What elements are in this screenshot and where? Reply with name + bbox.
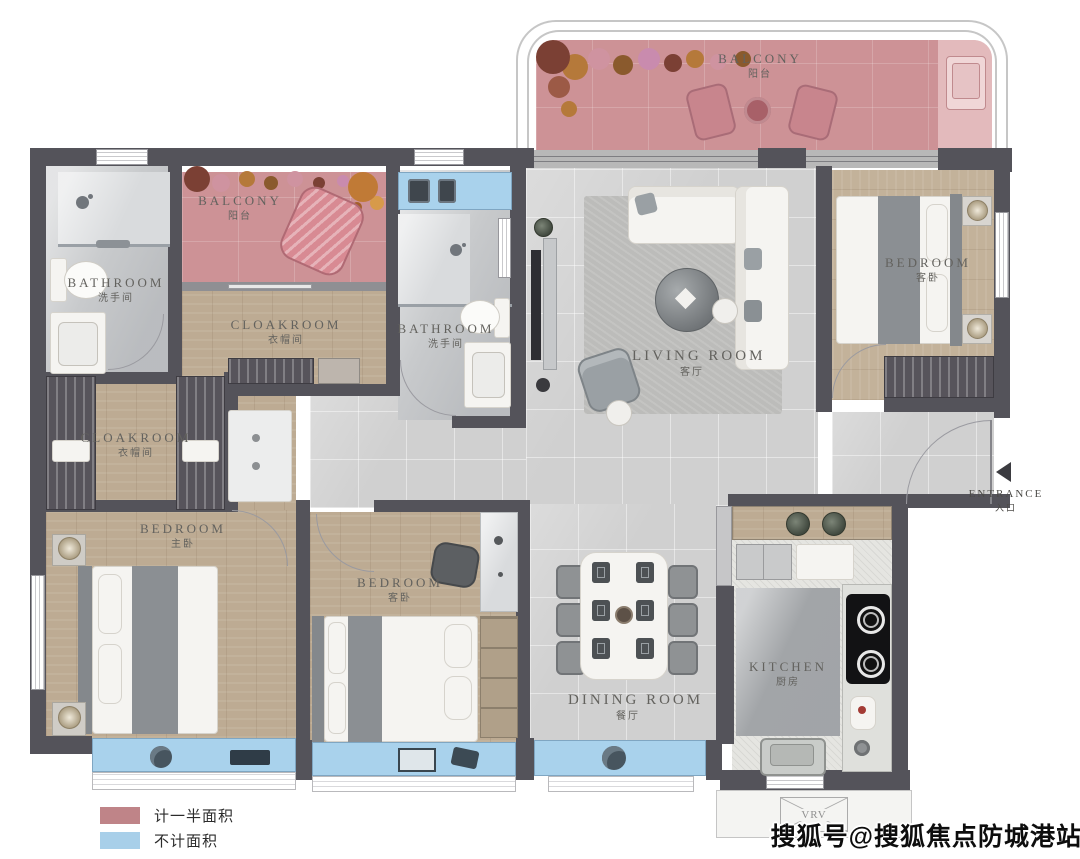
room-label-en: CLOAKROOM (76, 431, 196, 446)
decor-plate (150, 746, 172, 768)
bed-pillow (444, 624, 472, 668)
room-label-zh: 入口 (954, 503, 1058, 513)
room-label-cloakroom-top: CLOAKROOM 衣帽间 (226, 318, 346, 346)
wall (884, 398, 1010, 412)
wall (510, 166, 526, 428)
wall (516, 500, 530, 740)
shower-area (58, 172, 170, 244)
console-table (732, 506, 892, 540)
window-sill (548, 776, 694, 792)
room-label-en: BEDROOM (868, 256, 988, 271)
room-label-zh: 阳台 (180, 211, 300, 223)
room-label-en: CLOAKROOM (226, 318, 346, 333)
window (414, 149, 464, 165)
room-label-en: DINING ROOM (568, 692, 688, 709)
place-setting (636, 638, 654, 659)
room-label-en: BEDROOM (123, 522, 243, 537)
appliance-dot (858, 706, 866, 714)
bed-headboard (312, 616, 324, 742)
decor-frame (398, 748, 436, 772)
kitchen-sink-basin (770, 744, 814, 766)
room-label-zh: 客卧 (868, 273, 988, 285)
room-label-entrance: ENTRANCE 入口 (954, 488, 1058, 513)
laundry-sink-basin (952, 63, 980, 99)
dining-chair (668, 641, 698, 675)
entrance-arrow-icon (996, 462, 1011, 482)
room-label-cloakroom-left: CLOAKROOM 衣帽间 (76, 431, 196, 459)
dining-chair (668, 603, 698, 637)
room-label-zh: 客卧 (340, 593, 460, 605)
room-label-dining-room: DINING ROOM 餐厅 (568, 692, 688, 723)
window-sill (312, 776, 516, 792)
room-label-en: BEDROOM (340, 576, 460, 591)
shoe-shelf (480, 616, 518, 738)
room-label-en: BALCONY (180, 194, 300, 209)
refrigerator (736, 544, 792, 580)
room-label-zh: 主卧 (123, 539, 243, 551)
room-label-zh: 衣帽间 (226, 335, 346, 347)
window (96, 149, 148, 165)
wall (296, 500, 310, 742)
place-setting (592, 638, 610, 659)
table-lamp-icon (967, 200, 988, 221)
drain-icon (854, 740, 870, 756)
room-label-balcony-small: BALCONY 阳台 (180, 194, 300, 222)
window (995, 212, 1009, 298)
legend-label: 计一半面积 (154, 805, 234, 826)
room-label-en: BALCONY (700, 52, 820, 67)
room-label-zh: 餐厅 (568, 711, 688, 723)
bed-pillow (328, 682, 346, 734)
room-label-zh: 洗手间 (386, 339, 506, 351)
window (31, 575, 45, 690)
shower-head-icon (76, 196, 89, 209)
room-label-bedroom-guest-mid: BEDROOM 客卧 (340, 576, 460, 604)
balcony-small-door-track (228, 284, 312, 289)
decor-plate (602, 746, 626, 770)
cabinet-decor (494, 536, 503, 545)
window (498, 218, 511, 278)
legend-half-area: 计一半面积 (100, 805, 234, 826)
room-label-zh: 衣帽间 (76, 448, 196, 460)
place-setting (636, 562, 654, 583)
wardrobe-cabinet (228, 358, 314, 384)
bed-pillow (926, 204, 948, 262)
stove-burner-icon (857, 650, 885, 678)
speaker-icon (536, 378, 550, 392)
dresser-knob (252, 434, 260, 442)
wall (706, 740, 722, 780)
room-label-en: BATHROOM (386, 322, 506, 337)
wall (816, 398, 832, 412)
bed-pillow (98, 574, 122, 634)
bed-pillow (444, 676, 472, 720)
room-label-en: LIVING ROOM (632, 348, 752, 365)
dresser (228, 410, 292, 502)
shower-area (398, 214, 470, 304)
sofa-pillow (744, 248, 762, 270)
plant-icon (534, 218, 553, 237)
table-lamp-icon (58, 537, 81, 560)
bed-runner (132, 566, 178, 734)
kitchen-door-track (716, 506, 732, 586)
room-label-balcony-main: BALCONY 阳台 (700, 52, 820, 80)
bed-pillow (98, 644, 122, 704)
window-sill (92, 772, 296, 790)
sofa-chaise (735, 186, 789, 370)
flowers-decoration (348, 172, 378, 202)
shower-head-icon (450, 244, 462, 256)
floor-plan: BALCONY 阳台 (0, 0, 1080, 859)
shower-door-handle (96, 240, 130, 248)
vanity-basin (472, 352, 505, 398)
plant-icon (822, 512, 846, 536)
wall (374, 500, 530, 512)
wall (452, 416, 526, 428)
wall (30, 736, 92, 754)
room-label-zh: 阳台 (700, 69, 820, 81)
room-label-en: ENTRANCE (954, 488, 1058, 501)
wall (296, 740, 312, 780)
table-lamp-icon (58, 706, 81, 729)
room-label-zh: 厨房 (728, 677, 848, 689)
vanity-basin (58, 322, 98, 366)
room-label-bedroom-guest-top: BEDROOM 客卧 (868, 256, 988, 284)
room-label-en: KITCHEN (728, 660, 848, 675)
plant-icon (786, 512, 810, 536)
decor-laptop (230, 750, 270, 765)
wall (516, 738, 534, 780)
flowers-decoration (184, 166, 210, 192)
room-label-living-room: LIVING ROOM 客厅 (632, 348, 752, 379)
bed-runner (348, 616, 382, 742)
legend-swatch-blue (100, 832, 140, 849)
room-label-bathroom-middle: BATHROOM 洗手间 (386, 322, 506, 350)
stove-burner-icon (857, 606, 885, 634)
wall (728, 494, 908, 506)
side-table (712, 298, 738, 324)
watermark: 搜狐号@搜狐焦点防城港站 (771, 817, 1080, 853)
wall (892, 494, 908, 794)
legend-swatch-pink (100, 807, 140, 824)
tv-console (543, 238, 557, 370)
tv-screen (531, 250, 541, 360)
room-label-kitchen: KITCHEN 厨房 (728, 660, 848, 688)
wardrobe-shelf (318, 358, 360, 384)
balcony-round-rug (744, 97, 771, 124)
wall (816, 166, 832, 412)
place-setting (592, 600, 610, 621)
table-centerpiece (617, 608, 631, 622)
room-label-zh: 客厅 (632, 367, 752, 379)
ottoman (606, 400, 632, 426)
kitchen-cabinet (796, 544, 854, 580)
bed-pillow (328, 622, 346, 674)
sofa-pillow (744, 300, 762, 322)
legend-label: 不计面积 (154, 830, 218, 851)
wardrobe-cabinet (884, 356, 994, 398)
washer-icon (408, 179, 430, 203)
washer-icon (438, 179, 456, 203)
legend-excluded-area: 不计面积 (100, 830, 218, 851)
table-lamp-icon (967, 318, 988, 339)
room-label-en: BATHROOM (56, 276, 176, 291)
window (766, 775, 824, 789)
place-setting (636, 600, 654, 621)
place-setting (592, 562, 610, 583)
room-label-bedroom-master: BEDROOM 主卧 (123, 522, 243, 550)
room-label-zh: 洗手间 (56, 293, 176, 305)
dining-chair (668, 565, 698, 599)
flowers-decoration (536, 40, 570, 74)
room-label-bathroom-left: BATHROOM 洗手间 (56, 276, 176, 304)
dressing-cabinet (480, 512, 518, 612)
